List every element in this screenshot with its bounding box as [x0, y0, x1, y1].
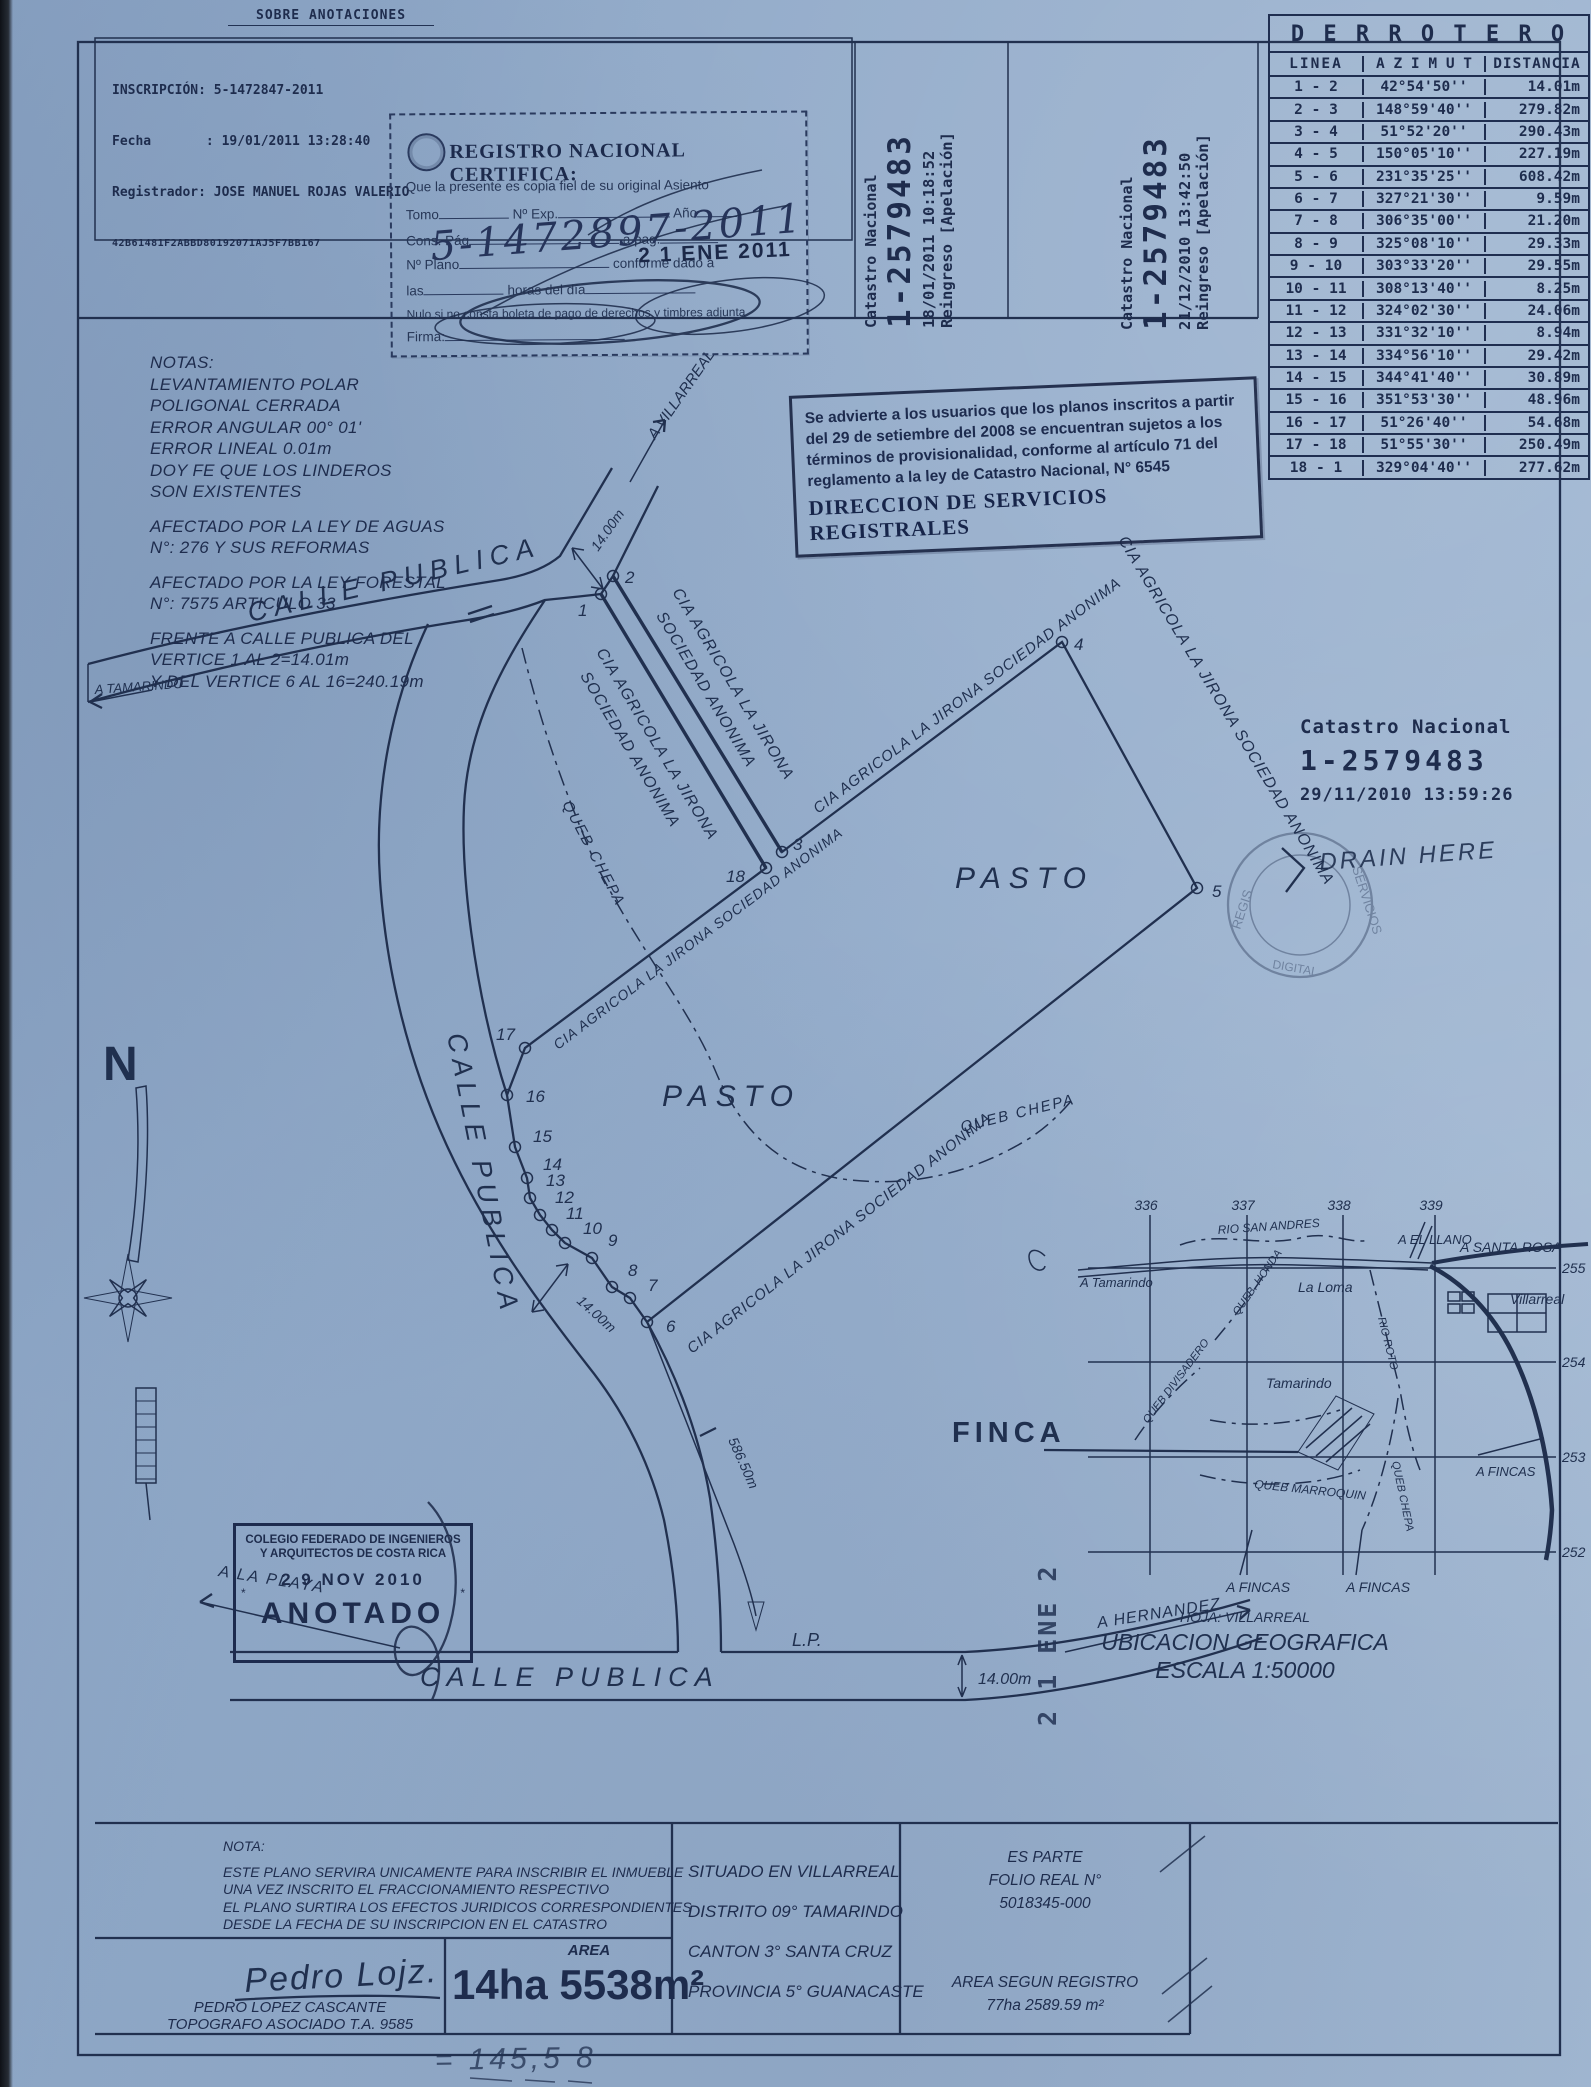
surveyor-signature: Pedro Lojz.: [235, 1952, 440, 2000]
es-parte-hand-slashes: [1160, 1836, 1212, 2022]
signature-text: Pedro Lojz.: [243, 1952, 439, 2000]
pencil-note-text: = 145,5 8: [435, 2041, 598, 2077]
handwriting-overlay: DRAIN HERE Pedro Lojz. = 145,5 8: [0, 0, 1591, 2087]
drain-here-annotation: DRAIN HERE: [1282, 837, 1498, 892]
drain-here-text: DRAIN HERE: [1319, 837, 1498, 876]
bottom-pencil-note: = 145,5 8: [435, 2041, 598, 2083]
registro-signature-scribble: [434, 170, 827, 352]
scanned-cadastral-plan: 1 2 3 4 5 6 7 8 9 10 11 12 13 14 15 16 1…: [0, 0, 1591, 2087]
colegio-signature-scribble: [395, 1502, 456, 1700]
scan-edge-shadow: [0, 0, 13, 2087]
